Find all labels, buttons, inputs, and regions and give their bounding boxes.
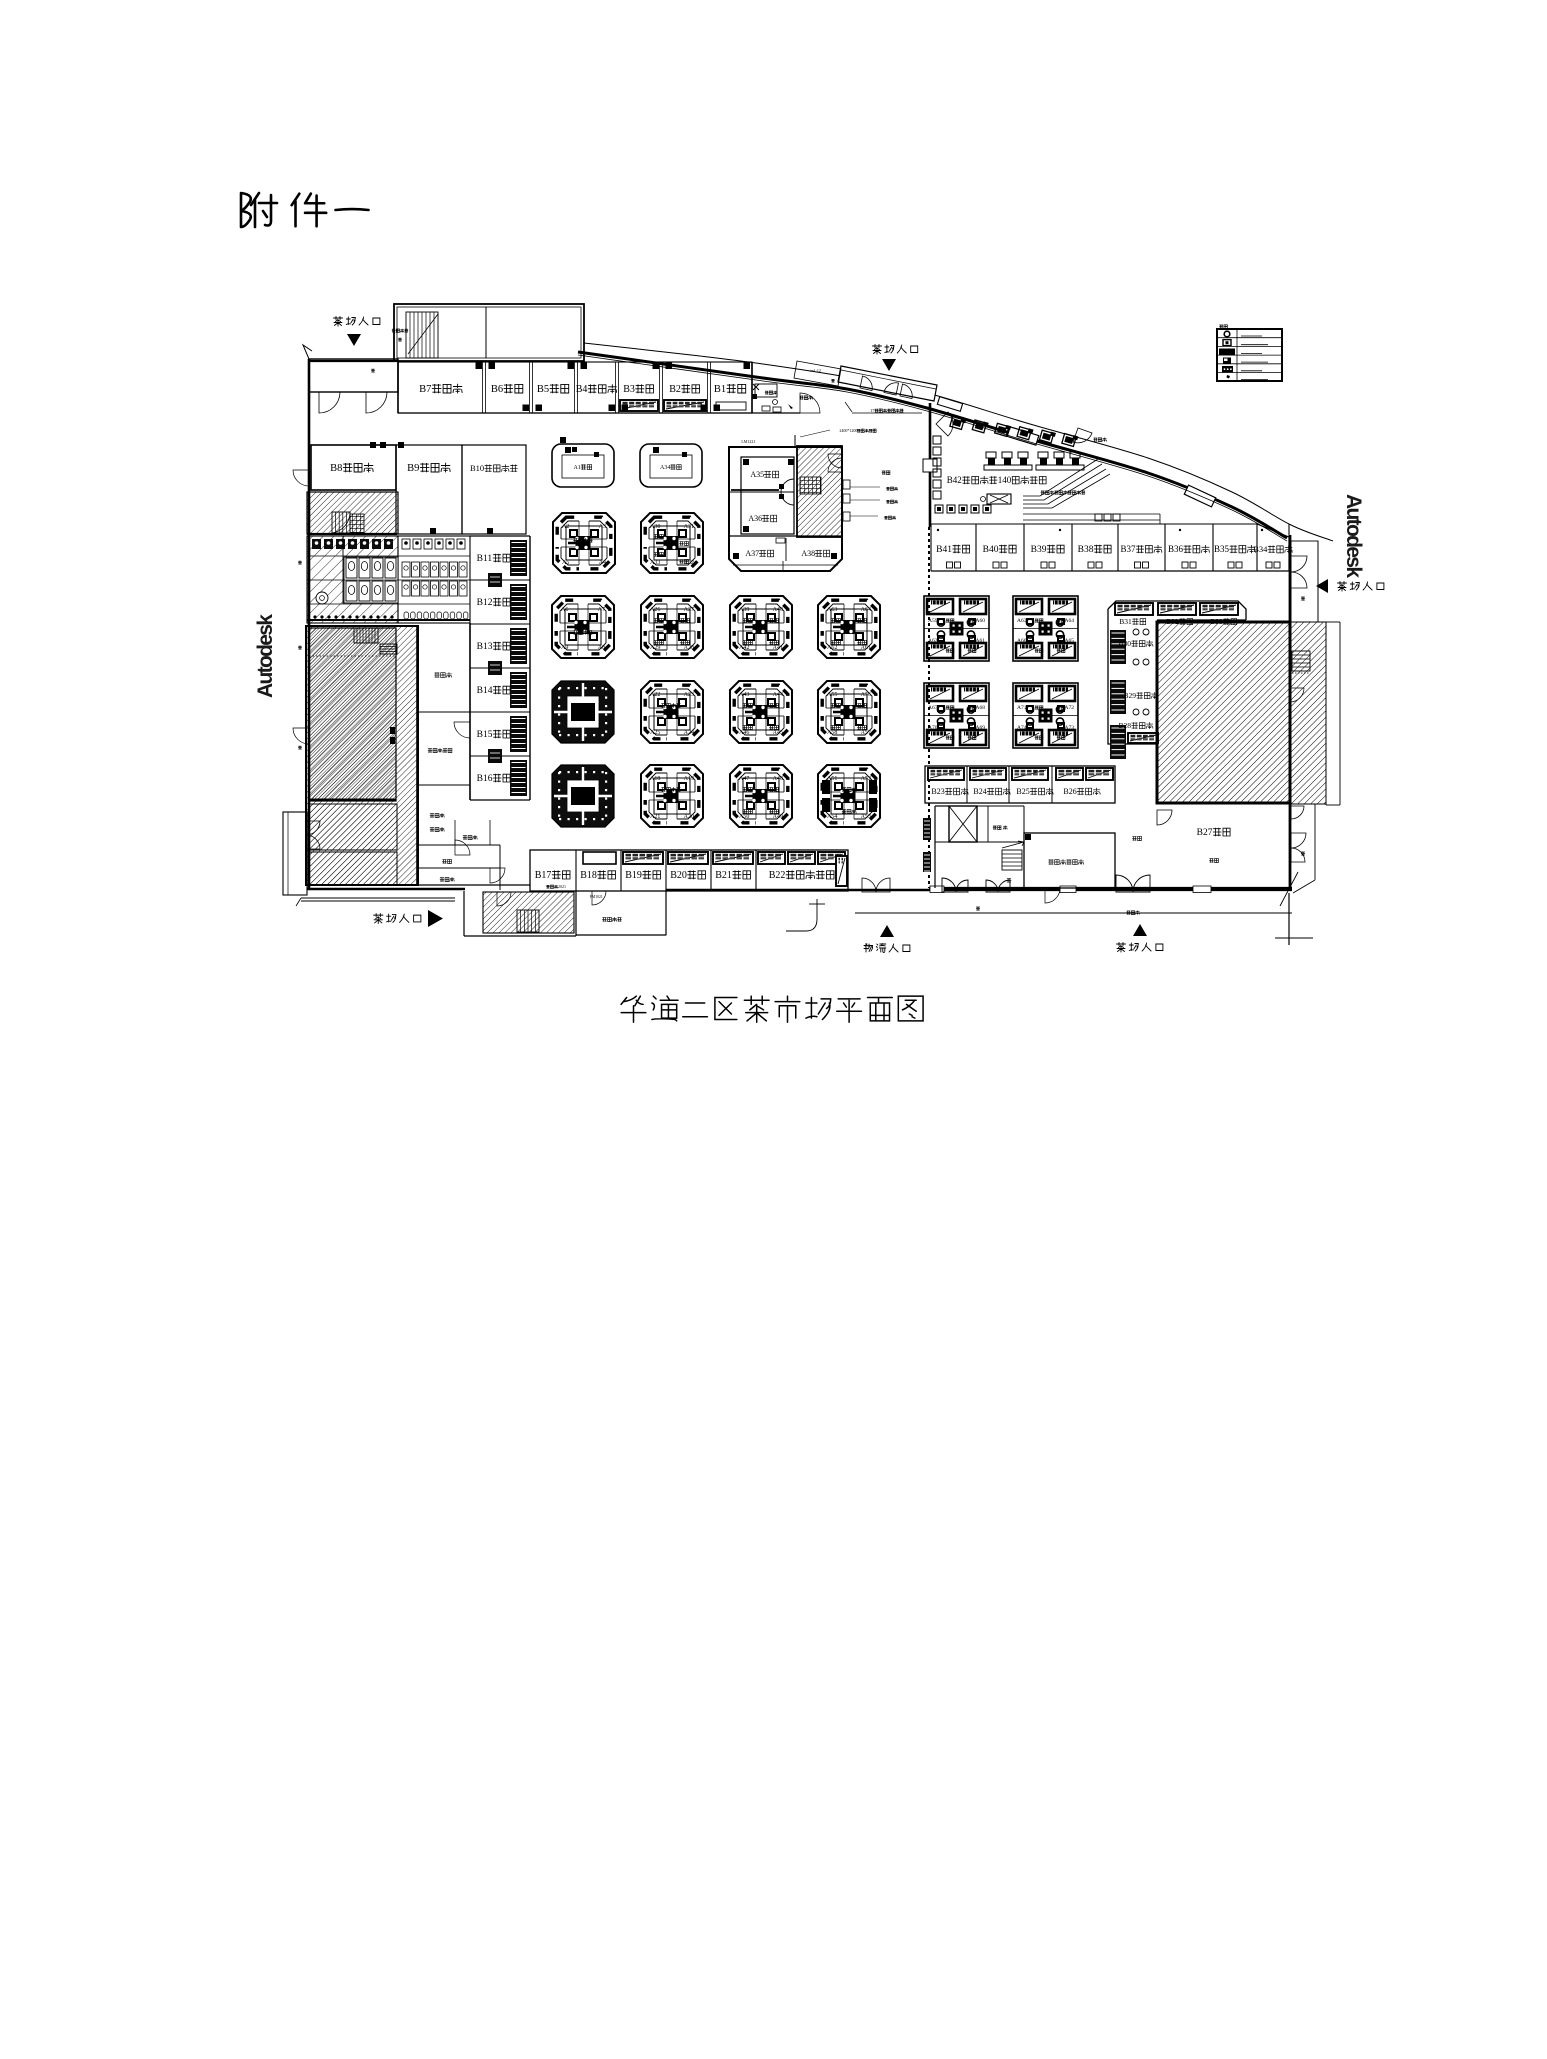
- svg-text:B11: B11: [477, 554, 493, 564]
- svg-text:A35: A35: [750, 470, 764, 479]
- svg-text:B5: B5: [537, 384, 549, 395]
- svg-text:B9: B9: [407, 463, 419, 474]
- svg-text:A6: A6: [561, 607, 568, 613]
- svg-text:A33: A33: [650, 560, 660, 566]
- svg-text:Autodesk: Autodesk: [1342, 494, 1365, 578]
- svg-text:B1: B1: [714, 384, 726, 395]
- svg-text:A54: A54: [827, 814, 837, 820]
- svg-text:B12: B12: [477, 598, 493, 608]
- svg-text:B39: B39: [1031, 545, 1047, 555]
- svg-text:B27: B27: [1197, 828, 1213, 838]
- svg-text:A64: A64: [1065, 618, 1075, 624]
- svg-text:A65: A65: [1065, 638, 1075, 644]
- svg-text:A26: A26: [650, 607, 660, 613]
- svg-text:A42: A42: [739, 645, 749, 651]
- svg-text:B40: B40: [983, 545, 999, 555]
- svg-text:A24: A24: [684, 730, 694, 736]
- svg-text:B25: B25: [1016, 787, 1029, 796]
- svg-text:140: 140: [998, 475, 1012, 485]
- svg-text:A74: A74: [1017, 725, 1027, 731]
- svg-text:A39: A39: [739, 607, 749, 613]
- svg-text:B6: B6: [491, 384, 503, 395]
- svg-text:A46: A46: [739, 730, 749, 736]
- svg-text:A18: A18: [650, 776, 660, 782]
- svg-text:A30: A30: [650, 524, 660, 530]
- svg-text:A1: A1: [574, 465, 581, 471]
- svg-text:B22: B22: [769, 870, 786, 881]
- svg-text:A25: A25: [650, 730, 660, 736]
- svg-text:A23: A23: [684, 692, 694, 698]
- svg-text:A2: A2: [562, 524, 569, 530]
- svg-text:A31: A31: [684, 524, 694, 530]
- svg-text:A56: A56: [861, 692, 871, 698]
- svg-text:A59: A59: [928, 618, 938, 624]
- svg-text:A67: A67: [928, 705, 938, 711]
- svg-text:B26: B26: [1063, 787, 1076, 796]
- svg-text:B20: B20: [670, 870, 687, 881]
- svg-text:A19: A19: [684, 776, 694, 782]
- svg-text:A50: A50: [739, 814, 749, 820]
- svg-text:A38: A38: [801, 549, 815, 558]
- svg-text:A72: A72: [1065, 705, 1075, 711]
- svg-text:A61: A61: [976, 638, 986, 644]
- svg-text:B41: B41: [936, 545, 952, 555]
- svg-text:B18: B18: [580, 870, 597, 881]
- svg-text:A48: A48: [773, 776, 783, 782]
- svg-text:2400*1200: 2400*1200: [839, 428, 857, 433]
- svg-text:A60: A60: [976, 618, 986, 624]
- svg-text:A47: A47: [739, 776, 749, 782]
- svg-text:B35: B35: [1214, 544, 1230, 554]
- svg-text:B4: B4: [576, 384, 588, 395]
- svg-text:B15: B15: [477, 730, 493, 740]
- svg-text:B38: B38: [1078, 545, 1094, 555]
- svg-text:A64: A64: [861, 607, 871, 613]
- svg-text:17: 17: [870, 408, 874, 413]
- svg-text:A69: A69: [976, 725, 986, 731]
- svg-text:A9: A9: [561, 645, 568, 651]
- svg-text:A63: A63: [827, 607, 837, 613]
- svg-text:B7: B7: [419, 384, 431, 395]
- svg-text:B34: B34: [1253, 544, 1268, 554]
- svg-text:A70: A70: [928, 725, 938, 731]
- svg-text:B37: B37: [1121, 544, 1137, 554]
- svg-text:B10: B10: [470, 463, 484, 473]
- svg-text:A63: A63: [1017, 618, 1027, 624]
- svg-text:A8: A8: [598, 645, 605, 651]
- svg-text:B36: B36: [1168, 544, 1184, 554]
- svg-text:B14: B14: [477, 686, 493, 696]
- svg-text:A21: A21: [650, 814, 660, 820]
- svg-text:A62: A62: [928, 638, 938, 644]
- svg-text:A73: A73: [1065, 725, 1075, 731]
- svg-text:B8: B8: [330, 463, 342, 474]
- svg-text:B2: B2: [669, 384, 681, 395]
- svg-text:A3: A3: [599, 524, 606, 530]
- svg-text:A5: A5: [562, 560, 569, 566]
- svg-text:A62: A62: [827, 645, 837, 651]
- svg-text:A36: A36: [748, 514, 762, 523]
- svg-text:B24: B24: [973, 787, 986, 796]
- svg-text:A58: A58: [827, 730, 837, 736]
- svg-text:B28: B28: [1119, 721, 1132, 730]
- svg-text:A49: A49: [773, 814, 783, 820]
- svg-text:A22: A22: [650, 692, 660, 698]
- svg-text:A27: A27: [684, 607, 694, 613]
- svg-text:B29: B29: [1124, 691, 1137, 700]
- svg-text:A57: A57: [861, 730, 871, 736]
- svg-text:A45: A45: [773, 730, 783, 736]
- svg-text:A61: A61: [861, 645, 871, 651]
- svg-text:A55: A55: [827, 692, 837, 698]
- svg-text:Autodesk: Autodesk: [254, 614, 277, 698]
- svg-text:B21: B21: [715, 870, 732, 881]
- svg-text:A41: A41: [773, 645, 783, 651]
- svg-text:i=1:12: i=1:12: [810, 368, 820, 373]
- svg-text:A34: A34: [660, 465, 670, 471]
- svg-text:2021: 2021: [558, 884, 566, 889]
- svg-text:A37: A37: [745, 549, 759, 558]
- svg-text:A7: A7: [598, 607, 605, 613]
- svg-text:A68: A68: [976, 705, 986, 711]
- svg-text:B3: B3: [623, 384, 635, 395]
- svg-text:B30: B30: [1119, 639, 1132, 648]
- svg-text:A20: A20: [684, 814, 694, 820]
- svg-text:A28: A28: [684, 645, 694, 651]
- svg-text:LM1221: LM1221: [741, 439, 755, 444]
- svg-text:B17: B17: [535, 870, 552, 881]
- svg-text:A53: A53: [861, 814, 871, 820]
- svg-text:A44: A44: [773, 692, 783, 698]
- svg-text:A66: A66: [1017, 638, 1027, 644]
- svg-text:A40: A40: [773, 607, 783, 613]
- svg-text:A71: A71: [1017, 705, 1027, 711]
- svg-text:B19: B19: [625, 870, 642, 881]
- svg-text:B31: B31: [1119, 617, 1132, 626]
- svg-text:A29: A29: [650, 645, 660, 651]
- svg-text:B13: B13: [477, 642, 493, 652]
- svg-text:A4: A4: [599, 560, 606, 566]
- svg-text:A43: A43: [739, 692, 749, 698]
- svg-text:B23: B23: [931, 787, 944, 796]
- svg-text:A32: A32: [684, 560, 694, 566]
- svg-text:B16: B16: [477, 774, 493, 784]
- svg-text:B42: B42: [947, 475, 962, 485]
